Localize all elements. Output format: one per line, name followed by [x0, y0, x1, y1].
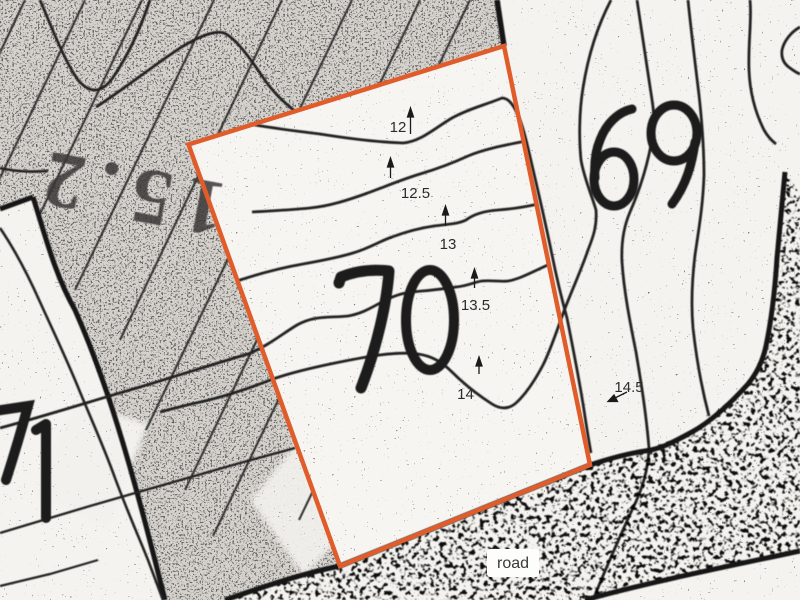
- svg-text:12: 12: [390, 119, 407, 136]
- svg-text:road: road: [497, 555, 529, 572]
- svg-text:14: 14: [457, 386, 474, 403]
- svg-text:12.5: 12.5: [401, 185, 430, 202]
- svg-text:13: 13: [440, 236, 457, 253]
- svg-text:14.5: 14.5: [614, 379, 643, 396]
- svg-text:13.5: 13.5: [461, 297, 490, 314]
